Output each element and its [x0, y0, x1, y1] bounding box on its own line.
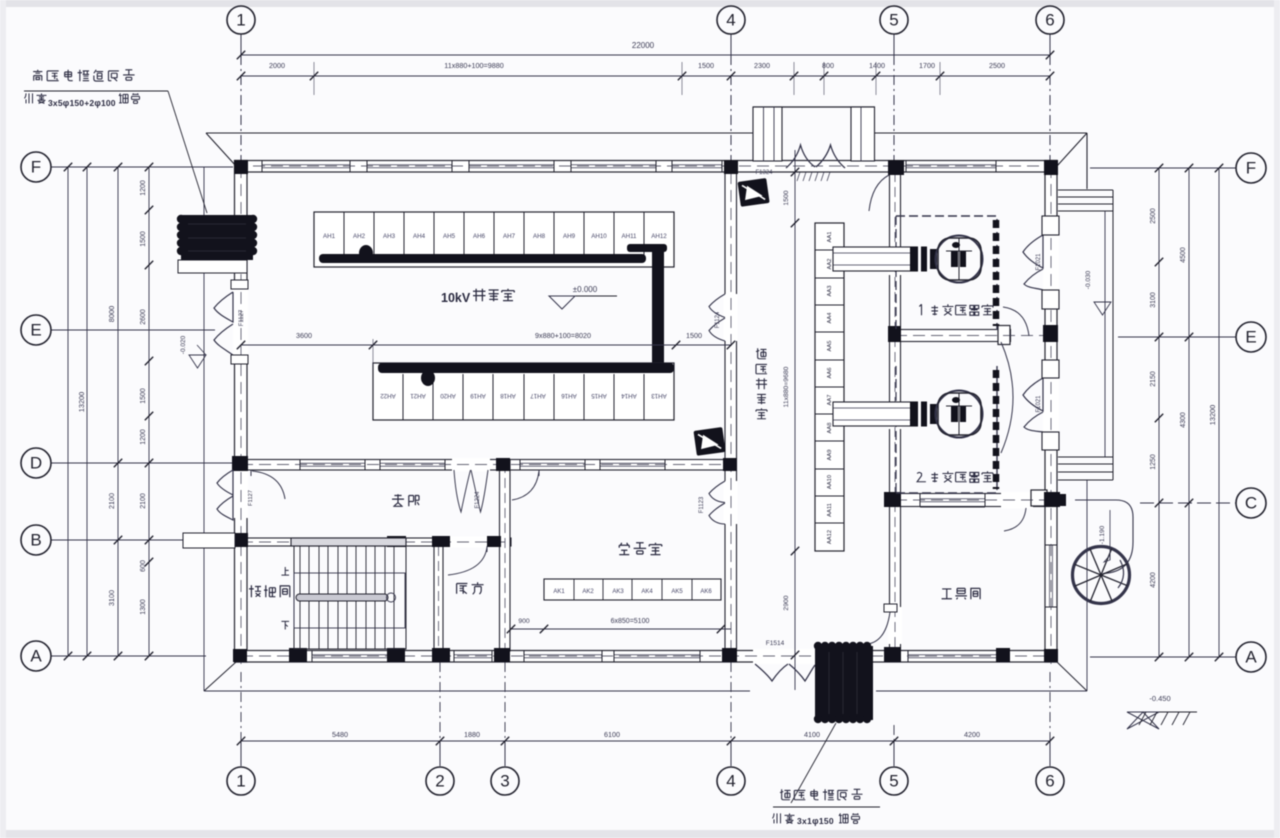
- svg-text:3600: 3600: [296, 331, 312, 340]
- svg-text:1: 1: [236, 772, 245, 791]
- svg-text:F1127: F1127: [239, 309, 245, 326]
- svg-text:F1514: F1514: [766, 640, 785, 647]
- svg-text:F1324: F1324: [755, 170, 773, 176]
- svg-text:AH2: AH2: [353, 233, 366, 240]
- svg-text:4500: 4500: [1180, 247, 1187, 263]
- svg-text:AA6: AA6: [827, 368, 833, 379]
- svg-text:800: 800: [822, 61, 834, 70]
- svg-text:1500: 1500: [686, 331, 702, 340]
- svg-text:1500: 1500: [698, 61, 714, 70]
- svg-text:AH8: AH8: [533, 233, 546, 240]
- svg-text:AK3: AK3: [612, 589, 624, 595]
- svg-text:AH14: AH14: [621, 392, 637, 399]
- svg-text:AA9: AA9: [827, 450, 833, 461]
- svg-text:AH20: AH20: [440, 392, 456, 399]
- svg-text:600: 600: [140, 560, 147, 572]
- svg-text:E: E: [30, 321, 41, 340]
- svg-text:AH10: AH10: [591, 233, 607, 240]
- svg-text:2500: 2500: [989, 61, 1005, 70]
- svg-text:D: D: [30, 454, 42, 473]
- svg-text:1500: 1500: [783, 190, 790, 205]
- svg-text:±0.000: ±0.000: [573, 285, 598, 294]
- svg-text:2100: 2100: [140, 493, 147, 509]
- svg-text:3100: 3100: [1150, 292, 1157, 308]
- svg-text:-0.450: -0.450: [1149, 694, 1170, 703]
- svg-text:22000: 22000: [632, 41, 655, 50]
- svg-text:AH15: AH15: [591, 392, 607, 399]
- svg-text:F1127: F1127: [248, 490, 254, 506]
- svg-text:4100: 4100: [804, 730, 820, 739]
- svg-text:AA2: AA2: [827, 259, 833, 270]
- svg-text:2: 2: [435, 772, 444, 791]
- svg-text:AH6: AH6: [473, 233, 486, 240]
- svg-text:2100: 2100: [107, 493, 116, 509]
- svg-text:AH4: AH4: [413, 233, 426, 240]
- svg-text:3100: 3100: [107, 590, 116, 606]
- svg-text:11x880=9680: 11x880=9680: [783, 366, 790, 407]
- svg-text:AH17: AH17: [530, 392, 546, 399]
- svg-text:AA1: AA1: [827, 232, 833, 243]
- svg-text:AH1: AH1: [323, 233, 336, 240]
- svg-text:6x850=5100: 6x850=5100: [611, 618, 650, 625]
- svg-text:F1021: F1021: [1036, 253, 1042, 271]
- svg-text:-0.030: -0.030: [1085, 270, 1092, 289]
- svg-text:2150: 2150: [1150, 371, 1157, 387]
- svg-text:AH12: AH12: [651, 233, 667, 240]
- svg-text:1500: 1500: [140, 388, 147, 404]
- svg-text:1250: 1250: [1150, 454, 1157, 470]
- svg-text:F: F: [31, 158, 41, 177]
- svg-text:AA10: AA10: [827, 475, 833, 489]
- svg-text:1200: 1200: [140, 429, 147, 445]
- svg-text:AH5: AH5: [443, 233, 456, 240]
- svg-text:900: 900: [518, 618, 530, 625]
- svg-text:AH7: AH7: [503, 233, 516, 240]
- svg-text:AH21: AH21: [410, 392, 426, 399]
- svg-text:AK6: AK6: [700, 589, 712, 595]
- svg-text:4300: 4300: [1180, 412, 1187, 428]
- svg-text:4: 4: [726, 772, 735, 791]
- svg-text:-0.020: -0.020: [180, 335, 187, 354]
- svg-text:11x880+100=9880: 11x880+100=9880: [444, 61, 503, 70]
- svg-text:-1.190: -1.190: [1099, 525, 1106, 544]
- svg-text:1300: 1300: [140, 599, 147, 615]
- svg-text:13200: 13200: [1208, 405, 1217, 426]
- svg-text:AH13: AH13: [651, 392, 667, 399]
- svg-text:F1224: F1224: [475, 491, 481, 509]
- svg-text:4200: 4200: [964, 730, 980, 739]
- svg-text:AA4: AA4: [827, 312, 833, 324]
- svg-text:1: 1: [236, 11, 245, 30]
- svg-text:13200: 13200: [77, 392, 86, 413]
- svg-text:AK5: AK5: [671, 589, 683, 595]
- svg-text:AA11: AA11: [827, 503, 833, 517]
- svg-text:AA5: AA5: [827, 341, 833, 352]
- svg-text:4: 4: [726, 11, 735, 30]
- svg-text:1700: 1700: [919, 61, 935, 70]
- svg-text:A: A: [30, 647, 42, 666]
- svg-text:AA12: AA12: [827, 530, 833, 544]
- svg-text:AH16: AH16: [561, 392, 577, 399]
- svg-text:3: 3: [500, 772, 509, 791]
- svg-text:2500: 2500: [1150, 208, 1157, 224]
- svg-text:AK2: AK2: [582, 589, 594, 595]
- svg-text:A: A: [1245, 648, 1257, 667]
- svg-text:E: E: [1245, 328, 1256, 347]
- svg-text:B: B: [30, 531, 41, 550]
- svg-text:AH19: AH19: [470, 392, 486, 399]
- svg-text:AA3: AA3: [827, 286, 833, 297]
- svg-text:F1021: F1021: [1036, 395, 1042, 413]
- svg-text:1200: 1200: [140, 180, 147, 196]
- svg-text:3x1φ150: 3x1φ150: [797, 816, 834, 826]
- svg-text:6: 6: [1045, 11, 1054, 30]
- svg-text:6100: 6100: [604, 730, 620, 739]
- svg-text:1880: 1880: [464, 730, 480, 739]
- svg-text:AH9: AH9: [563, 233, 576, 240]
- svg-text:6: 6: [1045, 772, 1054, 791]
- svg-text:AH11: AH11: [621, 233, 637, 240]
- svg-text:AA8: AA8: [827, 423, 833, 434]
- svg-text:2300: 2300: [754, 61, 770, 70]
- svg-text:2000: 2000: [269, 61, 285, 70]
- svg-text:F1124: F1124: [715, 311, 721, 328]
- svg-text:AA7: AA7: [827, 395, 833, 406]
- svg-text:10kV: 10kV: [441, 291, 471, 305]
- svg-text:AH18: AH18: [500, 392, 516, 399]
- svg-text:5: 5: [889, 772, 898, 791]
- svg-text:3x5φ150+2φ100: 3x5φ150+2φ100: [48, 98, 116, 108]
- svg-text:2900: 2900: [783, 595, 790, 610]
- svg-text:F: F: [1246, 159, 1256, 178]
- svg-text:1400: 1400: [869, 61, 885, 70]
- svg-text:AK4: AK4: [641, 589, 653, 595]
- svg-text:5: 5: [889, 11, 898, 30]
- svg-text:2600: 2600: [140, 309, 147, 325]
- svg-text:AH22: AH22: [380, 392, 396, 399]
- svg-text:5480: 5480: [332, 730, 348, 739]
- svg-text:9x880+100=8020: 9x880+100=8020: [535, 331, 591, 340]
- svg-text:AH3: AH3: [383, 233, 396, 240]
- svg-text:F1123: F1123: [699, 496, 705, 513]
- svg-text:AK1: AK1: [553, 589, 565, 595]
- svg-text:1500: 1500: [140, 231, 147, 247]
- svg-text:4200: 4200: [1150, 572, 1157, 588]
- svg-text:C: C: [1245, 494, 1257, 513]
- svg-text:8000: 8000: [107, 306, 116, 322]
